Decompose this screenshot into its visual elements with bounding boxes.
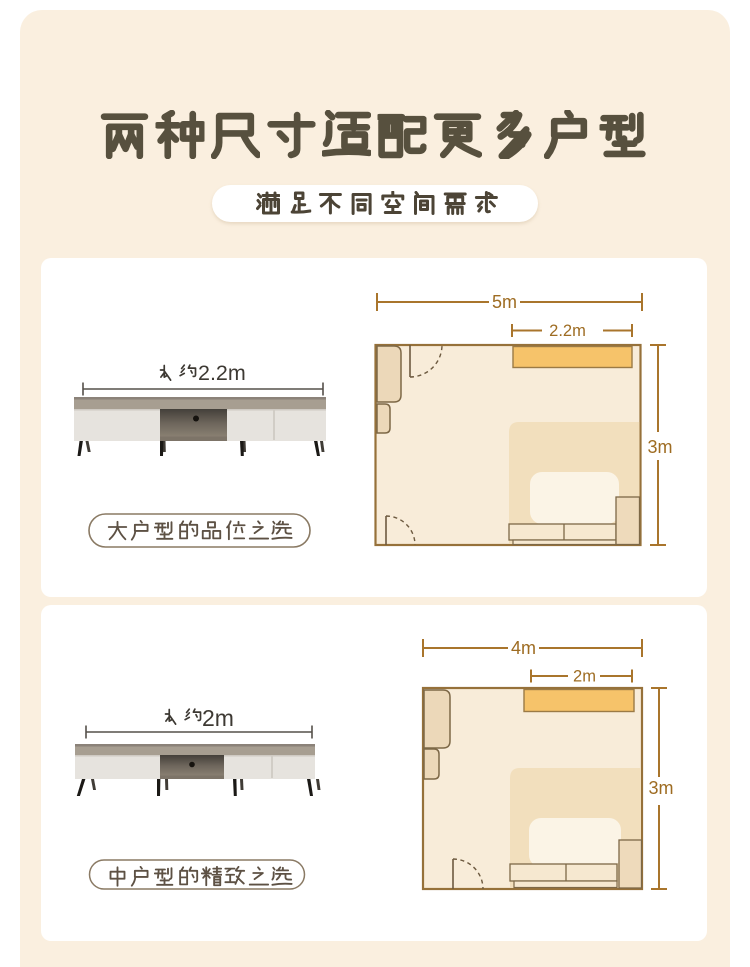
- svg-text:2.2m: 2.2m: [549, 322, 586, 340]
- svg-text:2m: 2m: [202, 705, 234, 731]
- svg-text:3m: 3m: [648, 778, 673, 798]
- svg-text:2m: 2m: [573, 668, 596, 686]
- svg-text:5m: 5m: [492, 292, 517, 312]
- svg-text:4m: 4m: [511, 638, 536, 658]
- svg-text:2.2m: 2.2m: [198, 361, 246, 385]
- svg-text:3m: 3m: [647, 437, 672, 457]
